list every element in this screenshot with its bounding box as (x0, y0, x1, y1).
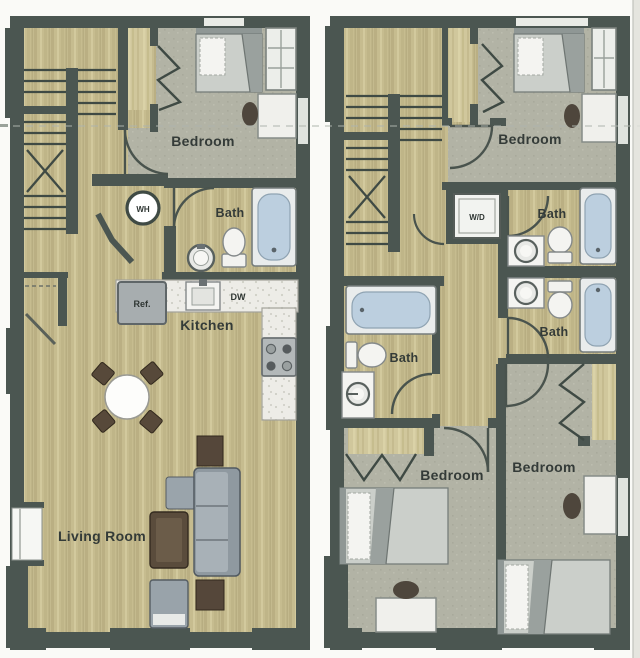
left-chaise (166, 477, 196, 509)
right-right-closet-floor (592, 358, 616, 440)
right-bedroom-top-label: Bedroom (498, 131, 562, 147)
left-right-window (298, 98, 308, 144)
right-bathtub-left (346, 286, 436, 334)
right-wall-window-1 (618, 96, 628, 144)
left-bath-label: Bath (216, 206, 245, 220)
left-refrigerator: Ref. (118, 282, 166, 324)
right-toilet-mid (548, 281, 572, 318)
left-unit-plan: WH Ref. DW (5, 16, 310, 650)
left-side-table-1 (197, 436, 223, 466)
left-stove (262, 338, 296, 376)
right-bedroom-left-label: Bedroom (420, 467, 484, 483)
right-toilet-left (346, 342, 386, 368)
right-top-window (516, 18, 588, 26)
right-sink-mid (508, 278, 544, 308)
left-toilet (222, 228, 246, 267)
left-desk-chair (242, 102, 258, 126)
left-bed (196, 28, 262, 92)
left-sink (188, 244, 214, 271)
left-top-window (204, 18, 244, 26)
scan-paper-edge (633, 0, 640, 658)
right-bath-top-label: Bath (538, 207, 567, 221)
dining-table (105, 375, 149, 419)
left-side-table-2 (196, 580, 224, 610)
right-bed-right (498, 560, 610, 634)
scan-fold-tick-left (0, 124, 8, 127)
left-ottoman (150, 580, 188, 628)
right-unit-plan: W/D (324, 16, 630, 650)
right-wardrobe-top (592, 28, 616, 90)
right-bedroom-right-label: Bedroom (512, 459, 576, 475)
left-living-room-label: Living Room (58, 528, 146, 544)
washer-dryer-label: W/D (469, 213, 485, 222)
refrigerator-label: Ref. (133, 299, 150, 309)
water-heater-label: WH (136, 205, 150, 214)
right-bath-left-label: Bath (390, 351, 419, 365)
left-kitchen-sink (186, 279, 220, 310)
floor-plan-drawing: WH Ref. DW (0, 0, 640, 658)
left-living-window (10, 502, 44, 566)
left-sofa (194, 468, 240, 576)
left-water-heater: WH (127, 192, 159, 224)
dishwasher-label: DW (231, 292, 246, 302)
right-bed-top (514, 28, 584, 92)
left-kitchen-label: Kitchen (180, 317, 233, 333)
left-armchair (150, 512, 188, 568)
right-sink-top (508, 236, 544, 266)
left-bedroom-label: Bedroom (171, 133, 235, 149)
right-left-closet-floor (348, 426, 428, 454)
right-sink-left (342, 372, 374, 418)
left-bathtub (252, 188, 296, 266)
right-bathtub-top (580, 188, 616, 264)
right-wall-window-2 (618, 478, 628, 536)
right-top-closet-floor (446, 26, 472, 122)
right-bathtub-mid (580, 278, 616, 352)
right-washer-dryer: W/D (446, 188, 508, 244)
right-bed-left (340, 488, 448, 564)
floor-plan-page: WH Ref. DW (0, 0, 640, 658)
right-bath-mid-label: Bath (540, 325, 569, 339)
left-wardrobe (266, 28, 296, 90)
right-toilet-top (548, 227, 572, 263)
